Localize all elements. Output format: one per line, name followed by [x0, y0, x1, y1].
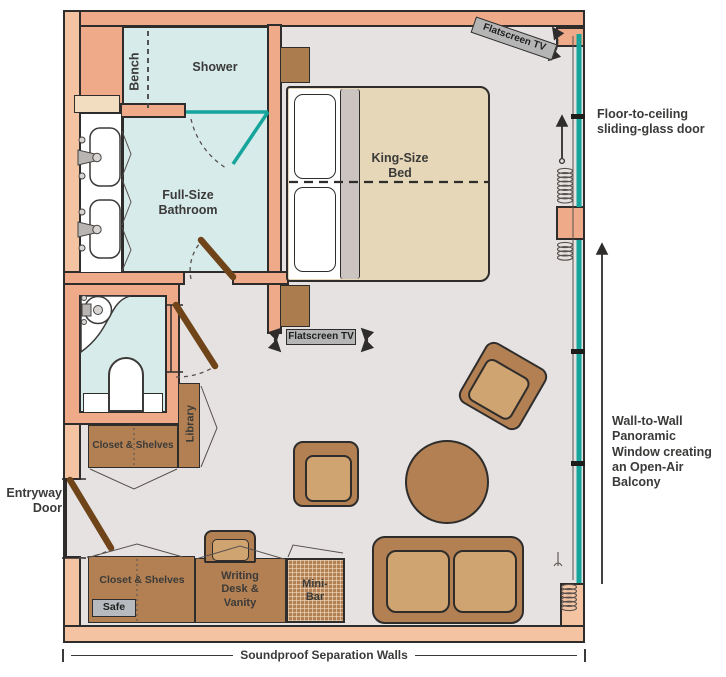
soundproof-dimension: Soundproof Separation Walls — [62, 647, 586, 663]
tv-living-label: Flatscreen TV — [286, 329, 356, 345]
bathroom-label: Full-Size Bathroom — [143, 188, 233, 219]
writing-desk-label: Writing Desk & Vanity — [208, 570, 272, 610]
entry-door — [62, 479, 111, 558]
library-label: Library — [184, 384, 197, 464]
sliding-door-annotation: Floor-to-ceiling sliding-glass door — [597, 107, 717, 138]
tv-living-swivel-arrow-left — [275, 329, 280, 351]
bench-label: Bench — [127, 37, 142, 107]
dimension-tick-left — [62, 649, 64, 662]
bathroom-door — [185, 240, 233, 279]
soundproof-label: Soundproof Separation Walls — [240, 648, 408, 662]
vanity-sinks — [78, 128, 120, 258]
annotation-arrows — [275, 28, 602, 584]
toilet — [109, 358, 143, 411]
entry-door-annotation: Entryway Door — [0, 486, 62, 517]
window-tick-1 — [571, 114, 585, 119]
toilet-door — [166, 305, 215, 377]
king-bed-label: King-Size Bed — [360, 151, 440, 182]
window-tick-3 — [571, 461, 585, 466]
shower-glass-door — [186, 112, 268, 168]
closet-bottom-label: Closet & Shelves — [94, 574, 190, 587]
window-tick-2 — [571, 349, 585, 354]
panoramic-window-annotation: Wall-to-Wall Panoramic Window creating a… — [612, 414, 726, 490]
shower-label: Shower — [170, 60, 260, 75]
tv-living-swivel-arrow-right — [362, 329, 367, 351]
closet-mid-label: Closet & Shelves — [89, 440, 177, 452]
floor-plan: Bench Shower Full-Size Bathroom King-Siz… — [0, 0, 726, 677]
safe-label: Safe — [92, 599, 136, 617]
dimension-tick-right — [584, 649, 586, 662]
window-track — [571, 34, 585, 583]
mini-bar-label: Mini-Bar — [295, 578, 335, 605]
toilet-fixtures — [81, 296, 143, 412]
